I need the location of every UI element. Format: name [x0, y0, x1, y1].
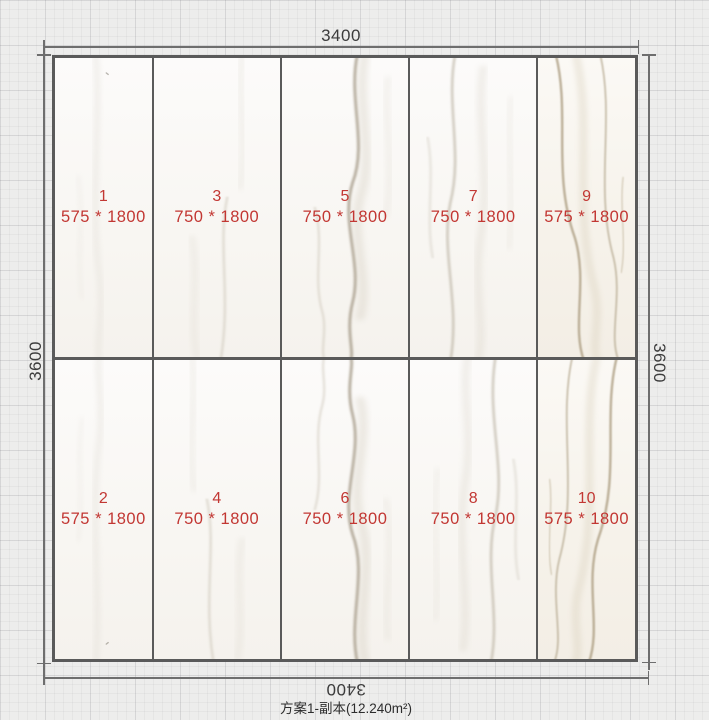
- tile-9[interactable]: 9 575 * 1800: [536, 58, 635, 357]
- tile-row-2: 2 575 * 1800 4 750 * 1800 6 750 * 1800: [55, 357, 635, 659]
- dimension-tick: [638, 40, 640, 54]
- marble-texture: [410, 58, 536, 357]
- tile-1[interactable]: 1 575 * 1800: [55, 58, 152, 357]
- dimension-top-label: 3400: [44, 26, 638, 46]
- marble-texture: [55, 58, 152, 357]
- marble-texture: [538, 360, 635, 659]
- dimension-bottom-label: 3400: [44, 679, 648, 699]
- dimension-top-line: [44, 46, 638, 48]
- floorplan-viewer: 3400 3600 3600 3400 方案1-副本(12.240m²) 1 5…: [0, 0, 709, 720]
- tile-row-1: 1 575 * 1800 3 750 * 1800 5 750 * 1800: [55, 58, 635, 357]
- plan-title: 方案1-副本(12.240m²): [44, 697, 648, 717]
- marble-texture: [410, 360, 536, 659]
- dimension-right-line: [648, 55, 650, 670]
- app-canvas: { "title": "方案1-副本(12.240m²)", "dimensio…: [0, 0, 709, 720]
- tile-2[interactable]: 2 575 * 1800: [55, 360, 152, 659]
- dimension-tick: [37, 54, 51, 56]
- marble-texture: [154, 58, 280, 357]
- tile-7[interactable]: 7 750 * 1800: [408, 58, 536, 357]
- tile-layout: 1 575 * 1800 3 750 * 1800 5 750 * 1800: [52, 55, 638, 662]
- tile-8[interactable]: 8 750 * 1800: [408, 360, 536, 659]
- dimension-tick: [642, 54, 656, 56]
- marble-texture: [282, 360, 408, 659]
- tile-4[interactable]: 4 750 * 1800: [152, 360, 280, 659]
- marble-texture: [282, 58, 408, 357]
- dimension-left-line: [43, 47, 45, 677]
- dimension-right-label: 3600: [649, 343, 669, 383]
- marble-texture: [538, 58, 635, 357]
- marble-texture: [154, 360, 280, 659]
- tile-5[interactable]: 5 750 * 1800: [280, 58, 408, 357]
- tile-3[interactable]: 3 750 * 1800: [152, 58, 280, 357]
- marble-texture: [55, 360, 152, 659]
- dimension-tick: [642, 662, 656, 664]
- dimension-tick: [37, 663, 51, 665]
- tile-10[interactable]: 10 575 * 1800: [536, 360, 635, 659]
- tile-6[interactable]: 6 750 * 1800: [280, 360, 408, 659]
